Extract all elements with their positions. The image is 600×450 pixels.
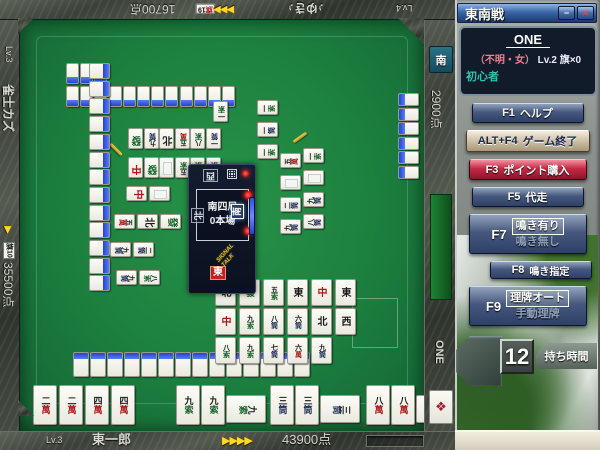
- tile-back: [398, 166, 419, 179]
- ornate-tile-icon: ❖: [429, 390, 453, 424]
- status-lamp-icon: [242, 170, 249, 177]
- hand-tile[interactable]: 四萬: [85, 385, 109, 425]
- discard-tile: 一筒: [257, 122, 278, 137]
- timer-value: 12: [500, 339, 534, 374]
- discard-tile: 北: [137, 214, 158, 229]
- discard-tile: 二筒: [280, 197, 301, 212]
- left-player-level: Lv.3: [4, 46, 13, 62]
- discard-tile: 發: [144, 157, 159, 178]
- tile-back: [89, 169, 110, 185]
- profile-name: ONE: [506, 32, 550, 48]
- tile-back: [158, 352, 174, 377]
- discard-tile: 一索: [257, 100, 278, 115]
- button-f8[interactable]: F8鳴き指定: [490, 261, 592, 279]
- top-player-turn-arrows: ▶▶▶: [214, 4, 234, 15]
- tile-back: [398, 108, 419, 121]
- meld-tile: 九索: [226, 395, 266, 423]
- right-player-active-plate: [430, 194, 452, 300]
- left-player-name: 雀士カズ: [2, 84, 14, 132]
- discard-tile: 八索: [215, 337, 236, 364]
- bottom-player-level: Lv.3: [46, 436, 62, 445]
- discard-tile: 九筒: [144, 128, 159, 149]
- tile-back: [398, 137, 419, 150]
- function-button-column: F1ヘルプALT+F4ゲーム終了F3ポイント購入F5代走F7鳴き有り鳴き無しF8…: [457, 103, 598, 326]
- tile-back: [89, 275, 110, 291]
- top-player-flag-badge: 旗19: [196, 4, 215, 14]
- sidebar-titlebar[interactable]: 東南戦 − ✕: [457, 3, 597, 23]
- tile-back: [124, 352, 140, 377]
- discard-tile: 中: [126, 186, 147, 201]
- button-f5[interactable]: F5代走: [472, 187, 584, 207]
- discard-tile: 東: [335, 279, 356, 306]
- tile-back: [109, 86, 122, 107]
- top-player-name: ♪ゆき♪: [288, 2, 324, 14]
- discard-tile: 二筒: [133, 242, 154, 257]
- center-info-panel: 南四局 0本場 西 北 南 東 SIGNAL TALK: [188, 164, 256, 294]
- tile-back: [89, 134, 110, 150]
- discard-tile: 中: [128, 157, 143, 178]
- bottom-player-turn-arrows: ▶▶▶▶: [222, 434, 252, 447]
- discard-tile: 九筒: [116, 270, 137, 285]
- tile-back: [89, 63, 110, 79]
- tile-back: [175, 352, 191, 377]
- meld-tile: 八萬: [366, 385, 390, 425]
- tile-back: [89, 187, 110, 203]
- discard-tile: 八筒: [263, 308, 284, 335]
- discard-tile: 五萬: [280, 153, 301, 168]
- discard-tile: 北: [311, 308, 332, 335]
- tile-back: [89, 240, 110, 256]
- discard-tile: [303, 170, 324, 185]
- button-f7[interactable]: F7鳴き有り鳴き無し: [469, 214, 587, 254]
- timer-hex-icon: [456, 336, 502, 386]
- tile-back: [194, 86, 207, 107]
- button-f9[interactable]: F9理牌オート手動理牌: [469, 286, 587, 326]
- discard-tile: 西: [335, 308, 356, 335]
- profile-gender: （不明・女）: [475, 55, 535, 66]
- meld-tile: 八萬: [391, 385, 415, 425]
- discard-tile: 發: [128, 128, 143, 149]
- discard-tile: 八索: [190, 128, 205, 149]
- dice-grid-icon[interactable]: [227, 169, 237, 179]
- wind-west-label: 西: [203, 169, 218, 182]
- discard-tile: 六筒: [287, 308, 308, 335]
- tile-back: [89, 116, 110, 132]
- player-info-panel: ONE （不明・女） Lv.2 旗×0 初心者: [459, 26, 597, 96]
- wind-north-label: 北: [191, 208, 204, 223]
- signal-talk-label: SIGNAL TALK: [216, 243, 241, 269]
- tile-back: [398, 93, 419, 106]
- hand-tile[interactable]: 二萬: [33, 385, 57, 425]
- tile-back: [180, 86, 193, 107]
- profile-meta: （不明・女） Lv.2 旗×0: [466, 51, 590, 66]
- right-player-score: 2900点: [430, 90, 442, 129]
- discard-tile: 九筒: [110, 242, 131, 257]
- tile-back: [89, 81, 110, 97]
- right-player-name: ONE: [433, 340, 444, 364]
- wind-east-label: 東: [210, 266, 226, 280]
- left-player-flag-badge: 旗10: [3, 242, 15, 259]
- discard-tile: 北: [159, 128, 174, 149]
- meld-tile: 八萬: [416, 395, 424, 423]
- button-f3[interactable]: F3ポイント購入: [469, 159, 587, 180]
- bottom-player-name: 東一郎: [92, 433, 131, 446]
- tile-back: [89, 152, 110, 168]
- profile-rank: 初心者: [466, 68, 590, 84]
- discard-tile: 東: [287, 279, 308, 306]
- tile-back: [66, 86, 79, 107]
- discard-tile: 一索: [213, 101, 228, 122]
- discard-tile: 五萬: [114, 214, 135, 229]
- right-player-seat-tile-icon: 南: [429, 46, 453, 73]
- tile-back: [90, 352, 106, 377]
- tile-back: [123, 86, 136, 107]
- button-f1[interactable]: F1ヘルプ: [472, 103, 584, 123]
- tile-back: [107, 352, 123, 377]
- discard-tile: 七筒: [263, 337, 284, 364]
- hand-tile[interactable]: 四萬: [111, 385, 135, 425]
- discard-tile: 八筒: [303, 214, 324, 229]
- discard-tile: 中: [311, 279, 332, 306]
- discard-tile: [149, 186, 170, 201]
- button-alt-f4[interactable]: ALT+F4ゲーム終了: [466, 130, 590, 152]
- discard-tile: 一索: [257, 144, 278, 159]
- tile-back: [151, 86, 164, 107]
- tile-back: [73, 352, 89, 377]
- left-player-turn-arrow: ▶: [2, 226, 13, 233]
- tile-back: [89, 222, 110, 238]
- tile-back: [398, 122, 419, 135]
- bottom-frame-slot: [366, 435, 424, 447]
- top-player-score: 16700点: [130, 3, 175, 15]
- meld-tile: 三筒: [270, 385, 294, 425]
- felt-marker-rect: [352, 298, 398, 348]
- discard-tile: 九索: [239, 337, 260, 364]
- discard-tile: [159, 157, 174, 178]
- discard-tile: [280, 175, 301, 190]
- discard-tile: 九索: [239, 308, 260, 335]
- top-player-level: Lv.4: [396, 3, 412, 12]
- window-title: 東南戦: [465, 4, 504, 23]
- timer-label: 持ち時間: [536, 343, 597, 369]
- tile-back: [89, 98, 110, 114]
- tile-back: [89, 205, 110, 221]
- tile-back: [141, 352, 157, 377]
- table-frame-left: [0, 0, 20, 450]
- close-icon[interactable]: ✕: [577, 6, 594, 20]
- wind-south-label: 南: [231, 204, 244, 219]
- mahjong-game-window: 一索發九筒北五萬八索一筒中發五索一索一索一索一筒一索五萬二筒九筒一索九筒八筒中五…: [0, 0, 600, 450]
- tile-back: [398, 151, 419, 164]
- left-player-score: 35500点: [2, 262, 14, 307]
- discard-tile: 六萬: [287, 337, 308, 364]
- sidebar-bottom-bar: [455, 430, 600, 450]
- bottom-player-score: 43900点: [282, 433, 331, 446]
- meld-tile: 三筒: [320, 395, 360, 423]
- hand-tile[interactable]: 二萬: [59, 385, 83, 425]
- tile-back: [66, 63, 79, 84]
- center-slider[interactable]: [249, 197, 255, 235]
- discard-tile: 九筒: [311, 337, 332, 364]
- discard-tile: 一索: [303, 148, 324, 163]
- discard-tile: 五萬: [175, 128, 190, 149]
- discard-tile: 九筒: [280, 219, 301, 234]
- discard-tile: 一筒: [206, 128, 221, 149]
- discard-tile: 九筒: [303, 192, 324, 207]
- minimize-icon[interactable]: −: [558, 6, 575, 20]
- meld-tile: 九索: [176, 385, 200, 425]
- tile-back: [137, 86, 150, 107]
- discard-tile: 中: [215, 308, 236, 335]
- tile-back: [165, 86, 178, 107]
- meld-tile: 三筒: [295, 385, 319, 425]
- discard-tile: 八索: [139, 270, 160, 285]
- discard-tile: 五索: [263, 279, 284, 306]
- profile-level: Lv.2 旗×0: [538, 55, 581, 66]
- discard-tile: 發: [160, 214, 181, 229]
- tile-back: [89, 258, 110, 274]
- tile-back: [192, 352, 208, 377]
- meld-tile: 九索: [201, 385, 225, 425]
